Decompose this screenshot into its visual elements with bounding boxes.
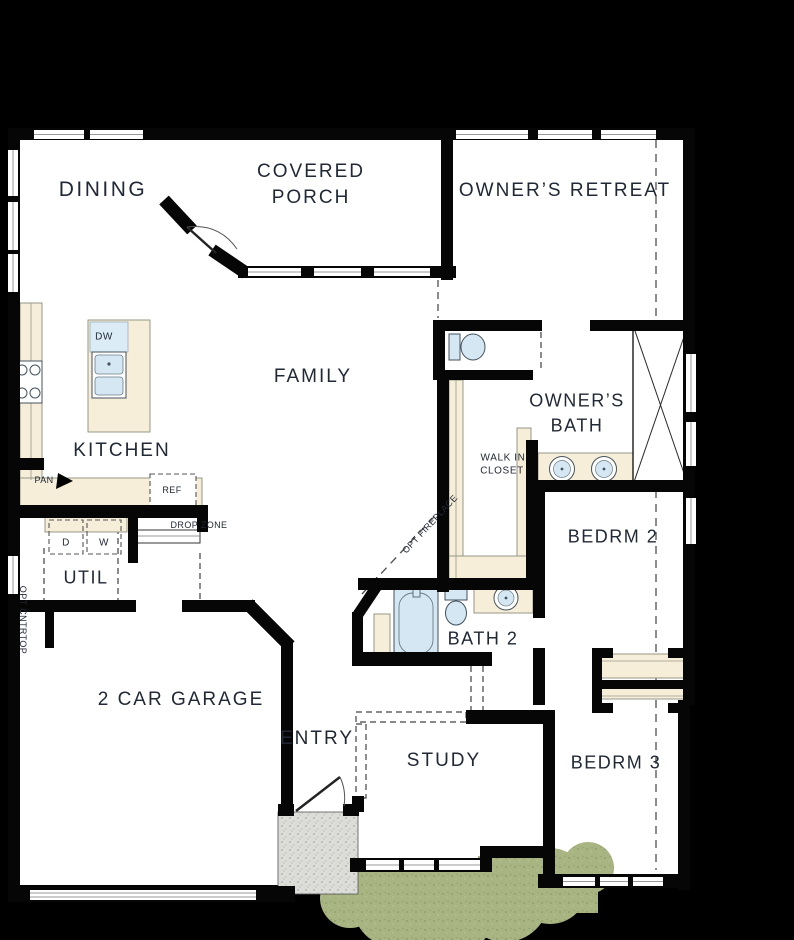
annotation-dryer: D — [62, 538, 70, 549]
room-label-kitchen: KITCHEN — [73, 440, 170, 462]
kitchen-sink-icon — [92, 352, 126, 398]
room-label-owners-bath-1: OWNER’S — [529, 391, 625, 412]
room-label-bath2: BATH 2 — [448, 629, 519, 650]
room-label-entry: ENTRY — [280, 728, 354, 750]
drop-zone-bench — [133, 530, 200, 543]
room-label-bedrm3: BEDRM 3 — [571, 753, 662, 774]
annotation-washer: W — [99, 538, 109, 549]
shower-icon — [633, 327, 688, 483]
annotation-opt-cntrtop: OPT CNTRTOP — [18, 586, 28, 654]
annotation-dw: DW — [95, 332, 113, 343]
floorplan-drawing — [0, 0, 794, 940]
room-label-walk-in-closet-1: WALK IN — [481, 453, 526, 464]
room-label-covered-porch-1: COVERED — [257, 161, 365, 183]
toilet-icon — [449, 334, 485, 360]
room-label-family: FAMILY — [274, 366, 352, 388]
room-label-owners-retreat: OWNER’S RETREAT — [459, 180, 671, 202]
room-label-dining: DINING — [59, 178, 148, 202]
toilet2-icon — [445, 588, 467, 625]
room-label-owners-bath-2: BATH — [551, 416, 604, 437]
room-label-util: UTIL — [63, 568, 108, 589]
annotation-drop-zone: DROP ZONE — [171, 520, 228, 530]
room-label-study: STUDY — [407, 750, 481, 772]
floorplan-page: DINING COVERED PORCH OWNER’S RETREAT FAM… — [0, 0, 794, 940]
annotation-ref: REF — [162, 485, 181, 495]
room-label-bedrm2: BEDRM 2 — [568, 527, 659, 548]
room-label-garage: 2 CAR GARAGE — [98, 689, 265, 711]
room-label-walk-in-closet-2: CLOSET — [480, 466, 524, 477]
room-label-covered-porch-2: PORCH — [272, 187, 351, 209]
bathtub-icon — [394, 587, 438, 659]
annotation-pan: PAN — [34, 475, 53, 485]
entry-stoop — [278, 812, 358, 894]
